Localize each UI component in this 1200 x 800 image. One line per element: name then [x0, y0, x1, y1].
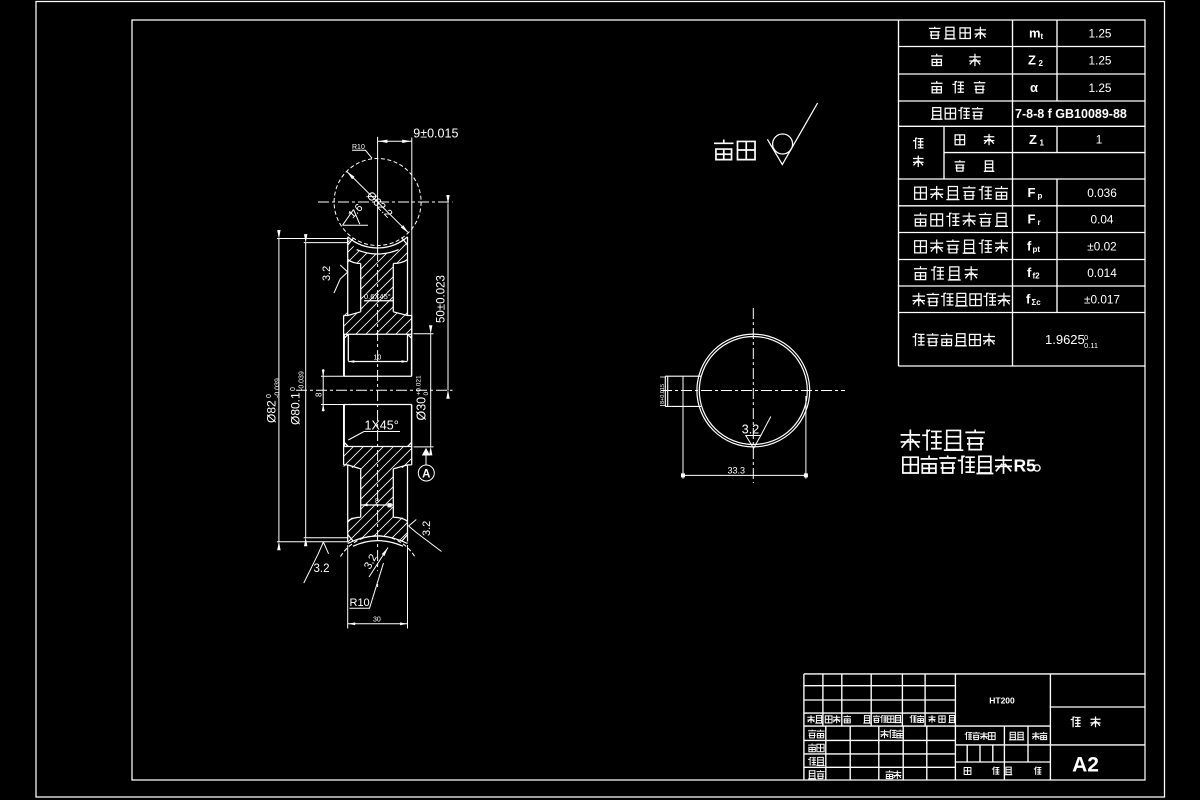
svg-text:2: 2: [1039, 59, 1044, 68]
svg-text:Σc: Σc: [1032, 298, 1042, 307]
svg-text:33.3: 33.3: [728, 465, 746, 475]
svg-text:R10: R10: [352, 144, 365, 151]
svg-text:A: A: [422, 469, 430, 481]
svg-text:f2: f2: [1033, 272, 1041, 281]
svg-text:8: 8: [375, 498, 379, 505]
svg-text:HT200: HT200: [989, 696, 1015, 706]
svg-text:0.014: 0.014: [1087, 266, 1117, 280]
svg-text:±0.02: ±0.02: [1087, 240, 1116, 254]
svg-text:m: m: [1029, 26, 1041, 41]
svg-text:3.2: 3.2: [421, 521, 433, 536]
svg-text:1: 1: [1096, 132, 1103, 146]
svg-text:1.25: 1.25: [1089, 27, 1112, 41]
svg-text:0: 0: [290, 387, 297, 391]
svg-text:0: 0: [266, 394, 273, 398]
svg-text:Ø82: Ø82: [265, 400, 279, 423]
svg-text:R10: R10: [350, 597, 370, 609]
svg-text:0: 0: [423, 392, 430, 396]
svg-text:7-8-8 f GB10089-88: 7-8-8 f GB10089-88: [1015, 107, 1127, 121]
svg-text:3.2: 3.2: [742, 423, 759, 437]
svg-text:3.2: 3.2: [314, 563, 330, 575]
svg-text:50±0.023: 50±0.023: [436, 275, 448, 323]
svg-text:10: 10: [374, 355, 382, 362]
svg-text:1.25: 1.25: [1089, 81, 1112, 95]
svg-text:0.6X45°: 0.6X45°: [364, 292, 391, 301]
svg-text:±0.017: ±0.017: [1084, 293, 1120, 307]
svg-text:pt: pt: [1033, 245, 1041, 254]
svg-text:3.2: 3.2: [321, 266, 333, 281]
svg-text:f: f: [1026, 292, 1031, 307]
svg-text:p: p: [1038, 191, 1043, 200]
svg-text:1.25: 1.25: [1089, 54, 1112, 68]
svg-text:r: r: [1038, 218, 1041, 227]
svg-text:-0.039: -0.039: [299, 371, 306, 391]
svg-text:Z: Z: [1028, 53, 1036, 68]
svg-text:9±0.015: 9±0.015: [413, 127, 458, 141]
svg-text:0.036: 0.036: [1087, 186, 1117, 200]
svg-text:0.11: 0.11: [1084, 341, 1098, 350]
svg-text:F: F: [1028, 185, 1036, 200]
svg-text:30: 30: [373, 616, 381, 623]
svg-text:8: 8: [315, 392, 324, 397]
svg-text:1X45°: 1X45°: [365, 419, 399, 433]
svg-text:-0.039: -0.039: [275, 378, 282, 398]
svg-text:R5: R5: [1014, 456, 1037, 476]
svg-text:Ø80.1: Ø80.1: [289, 392, 303, 425]
svg-text:A2: A2: [1072, 754, 1099, 777]
svg-text:8+0.015: 8+0.015: [660, 384, 666, 404]
svg-text:1: 1: [1040, 138, 1045, 147]
svg-text:t: t: [1041, 32, 1044, 41]
svg-text:α: α: [1030, 80, 1038, 95]
svg-text:Z: Z: [1029, 132, 1037, 147]
svg-text:1.9625: 1.9625: [1045, 332, 1085, 347]
svg-text:F: F: [1028, 212, 1036, 227]
svg-text:f: f: [1027, 239, 1032, 254]
svg-text:0.04: 0.04: [1091, 213, 1114, 227]
svg-text:+0.021: +0.021: [416, 375, 423, 395]
svg-text:Ø30: Ø30: [415, 397, 429, 421]
svg-text:f: f: [1027, 265, 1032, 280]
